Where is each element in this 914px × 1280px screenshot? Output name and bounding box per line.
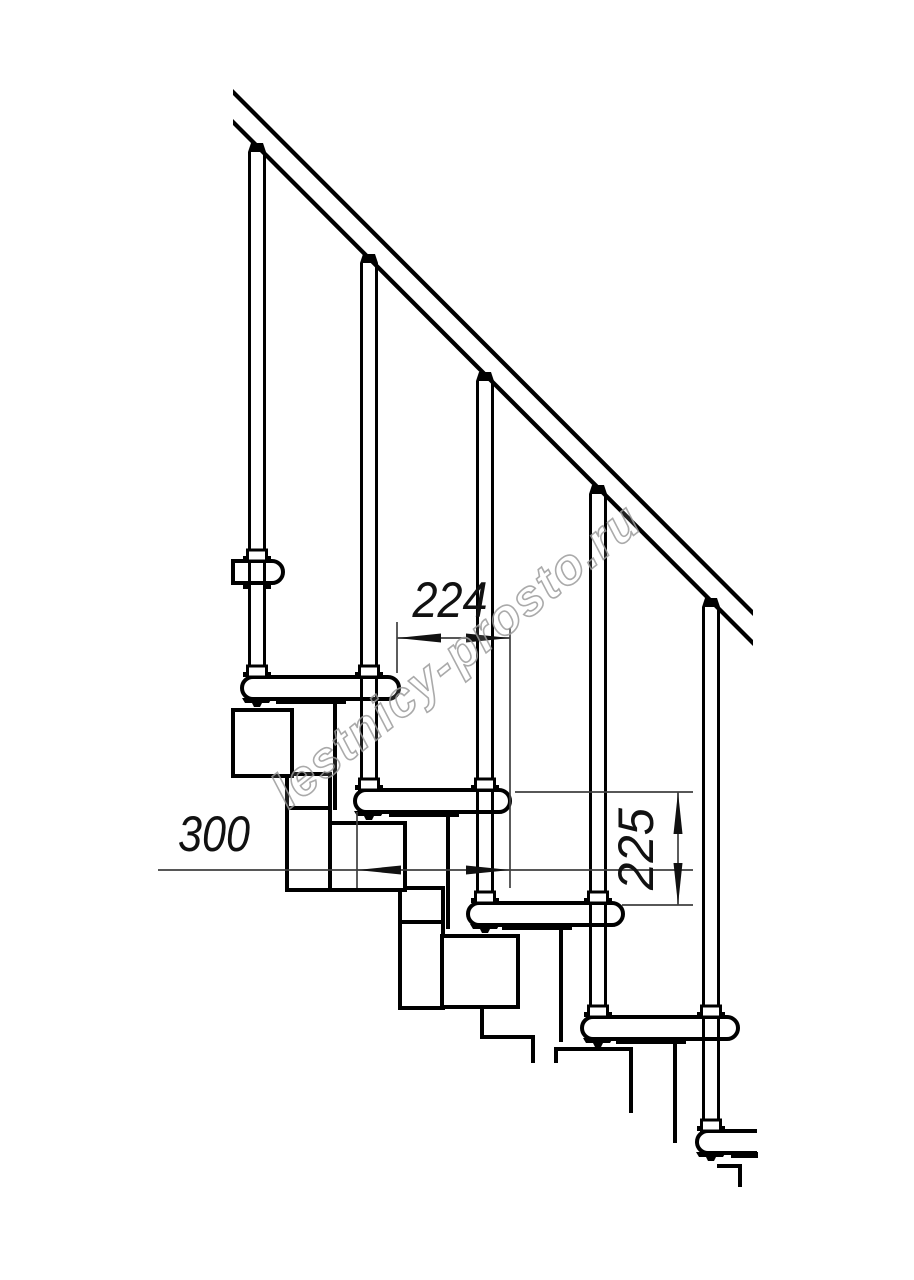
baluster-1: [243, 143, 271, 677]
tread-6-connector: [696, 1152, 726, 1161]
arrowhead-right: [466, 866, 510, 875]
tread-5-shadow: [616, 1038, 686, 1044]
tread-4: [468, 903, 623, 925]
tread-3: [355, 790, 510, 812]
bottom-step-outline: [717, 1166, 740, 1187]
module-box-2: [330, 823, 405, 890]
tread-6-shadow: [731, 1152, 758, 1158]
arrowhead-down: [674, 863, 683, 905]
arrowhead-up: [674, 792, 683, 834]
staircase-side-elevation: 224 300 225 lestnicy-prosto.ru: [0, 0, 914, 1280]
module-column-3: [482, 1008, 533, 1063]
staircase-drawing-page: 224 300 225 lestnicy-prosto.ru: [0, 0, 914, 1280]
baluster-5: [697, 598, 725, 1131]
tread-4-shadow: [502, 924, 572, 930]
dimension-value-rise: 225: [608, 808, 664, 891]
tread-2-shadow: [276, 698, 346, 704]
tread-3-connector: [354, 811, 384, 820]
tread-1: [233, 561, 283, 583]
tread-2-connector: [242, 698, 272, 707]
tread-5-connector: [583, 1038, 613, 1047]
watermark: lestnicy-prosto.ru: [261, 491, 652, 818]
tread-3-shadow: [389, 811, 459, 817]
tread-6: [697, 1131, 757, 1153]
module-column-2: [400, 888, 443, 1008]
module-box-3: [442, 936, 518, 1007]
tread-4-connector: [470, 924, 500, 933]
dimension-value-depth: 300: [178, 806, 250, 862]
tread-5: [582, 1017, 738, 1039]
module-box-4-partial: [556, 1047, 631, 1113]
